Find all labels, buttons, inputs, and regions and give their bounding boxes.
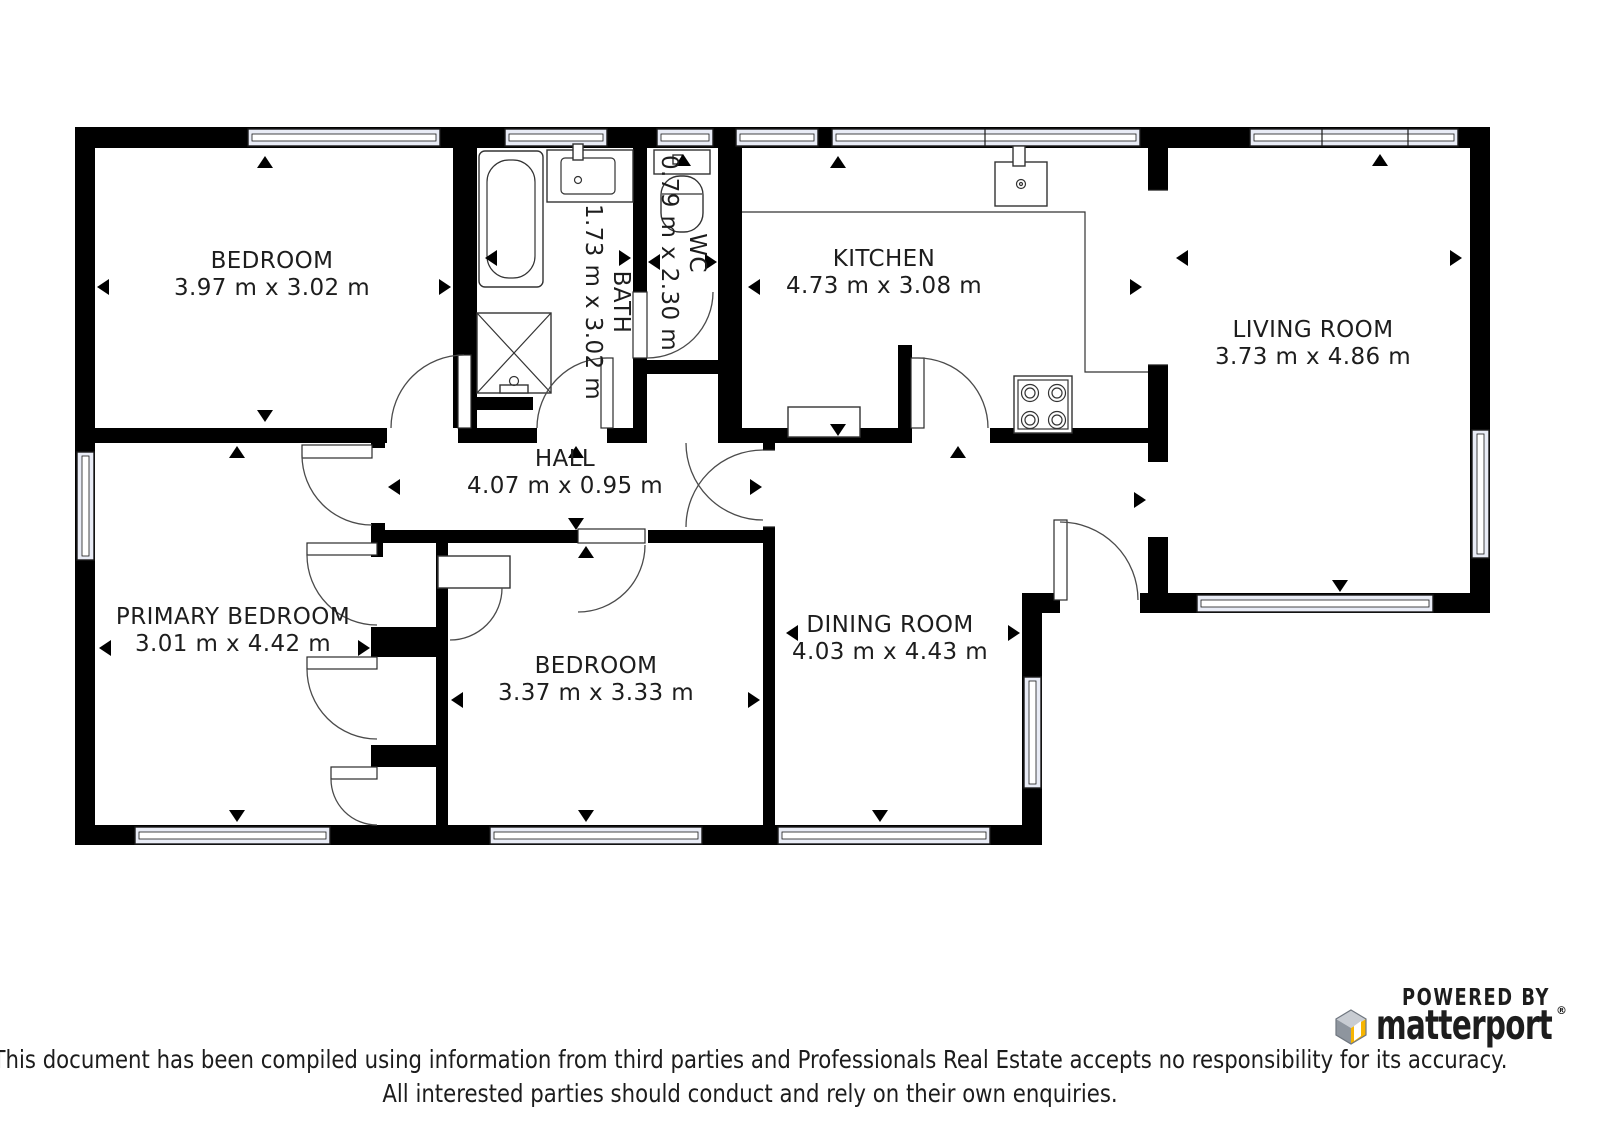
room-name: DINING ROOM	[806, 612, 973, 638]
room-dims: 3.01 m x 4.42 m	[135, 631, 331, 657]
window-living-top	[1250, 129, 1458, 146]
room-label-hall: HALL 4.07 m x 0.95 m	[467, 446, 663, 499]
room-name: BEDROOM	[211, 248, 334, 274]
window-kitchen-main	[832, 129, 1140, 146]
room-dims: 0.79 m x 2.30 m	[656, 155, 682, 351]
door-entry	[1054, 520, 1138, 600]
door-kitchen	[911, 358, 988, 428]
windows-layer	[77, 129, 1489, 844]
room-dims: 3.73 m x 4.86 m	[1215, 344, 1411, 370]
door-primary-entry	[302, 445, 372, 525]
door-bedroom1	[391, 355, 471, 428]
wall-hall-top-stub	[607, 428, 633, 443]
room-name: LIVING ROOM	[1233, 317, 1394, 343]
wall-closet-divider-1	[371, 627, 448, 657]
room-label-dining-room: DINING ROOM 4.03 m x 4.43 m	[792, 612, 988, 665]
bedroom2-wardrobe	[438, 556, 510, 588]
floor-plan-page: BEDROOM 3.97 m x 3.02 m BATH 1.73 m x 3.…	[0, 0, 1600, 1131]
bathtub	[479, 151, 543, 287]
window-bath	[505, 129, 607, 146]
door-bedroom2-wardrobe	[450, 588, 502, 640]
room-label-primary-bedroom: PRIMARY BEDROOM 3.01 m x 4.42 m	[116, 604, 350, 657]
door-bedroom2	[578, 529, 645, 612]
room-label-kitchen: KITCHEN 4.73 m x 3.08 m	[786, 246, 982, 299]
room-name: BATH	[608, 271, 634, 334]
room-label-living-room: LIVING ROOM 3.73 m x 4.86 m	[1215, 317, 1411, 370]
room-dims: 3.97 m x 3.02 m	[174, 275, 370, 301]
disclaimer-line-1: This document has been compiled using in…	[0, 1045, 1507, 1074]
door-primary-closet-2	[307, 657, 377, 739]
window-bedroom2-bottom	[490, 827, 702, 844]
room-name: PRIMARY BEDROOM	[116, 604, 350, 630]
room-dims: 3.37 m x 3.33 m	[498, 680, 694, 706]
shower	[477, 313, 551, 393]
wall-hall-top-mid	[458, 428, 537, 443]
window-living-bottom	[1197, 595, 1433, 612]
room-name: HALL	[535, 446, 595, 472]
wall-bedroom1-bottom	[75, 428, 387, 443]
window-kitchen-small	[736, 129, 818, 146]
wall-kitchen-living-top	[1148, 127, 1168, 190]
wall-kitchen-living-mid	[1148, 365, 1168, 462]
wall-bath-wc-lower	[633, 358, 647, 443]
wall-kitchen-living-bottom	[1148, 537, 1168, 613]
room-dims: 4.07 m x 0.95 m	[467, 473, 663, 499]
window-dining-right	[1024, 677, 1041, 788]
room-dims: 4.03 m x 4.43 m	[792, 639, 988, 665]
window-primary-bottom	[135, 827, 330, 844]
wall-shower-stub	[471, 397, 533, 410]
wall-wc-kitchen	[718, 127, 742, 443]
room-label-bedroom-2: BEDROOM 3.37 m x 3.33 m	[498, 653, 694, 706]
matterport-branding: POWERED BY matterport ®	[1336, 985, 1567, 1049]
window-primary-left	[77, 452, 94, 560]
registered-trademark-symbol: ®	[1556, 1004, 1567, 1017]
fixtures-layer	[438, 144, 1148, 588]
opening-hall-dining	[763, 450, 775, 527]
window-bedroom1	[248, 129, 440, 146]
window-dining-bottom	[778, 827, 990, 844]
room-label-bedroom-1: BEDROOM 3.97 m x 3.02 m	[174, 248, 370, 301]
room-dims: 4.73 m x 3.08 m	[786, 273, 982, 299]
wall-closet-divider-2	[371, 745, 448, 767]
wall-closet-top	[371, 530, 448, 543]
wall-bedroom2-dining	[763, 530, 775, 825]
disclaimer-line-2: All interested parties should conduct an…	[382, 1079, 1117, 1108]
matterport-cube-icon	[1336, 1010, 1366, 1044]
wall-wc-bottom	[647, 360, 718, 374]
kitchen-counter	[742, 212, 1148, 437]
room-name: WC	[684, 233, 710, 273]
wall-hall-dining-stub-top	[763, 443, 775, 450]
door-primary-closet-3	[331, 767, 377, 825]
stove	[1014, 376, 1072, 433]
kitchen-sink	[995, 146, 1047, 206]
room-dims: 1.73 m x 3.02 m	[580, 204, 606, 400]
wall-kitchen-door-stub	[898, 345, 912, 443]
matterport-logo-text: matterport	[1376, 1001, 1552, 1049]
openings-layer	[763, 190, 1168, 527]
floor-plan-svg: BEDROOM 3.97 m x 3.02 m BATH 1.73 m x 3.…	[0, 0, 1600, 1131]
disclaimer-block: This document has been compiled using in…	[0, 1045, 1507, 1108]
room-name: BEDROOM	[535, 653, 658, 679]
window-living-right	[1472, 430, 1489, 558]
wall-bedroom2-top-west	[436, 530, 578, 543]
wall-primary-hall-stub-top	[371, 443, 385, 448]
bath-sink	[547, 144, 633, 202]
wall-bath-wc-upper	[633, 148, 647, 292]
window-wc	[657, 129, 713, 146]
walls-layer	[75, 127, 1490, 845]
opening-kitchen-living	[1148, 190, 1168, 365]
wall-bedroom2-top-east	[648, 530, 763, 543]
room-name: KITCHEN	[833, 246, 935, 272]
